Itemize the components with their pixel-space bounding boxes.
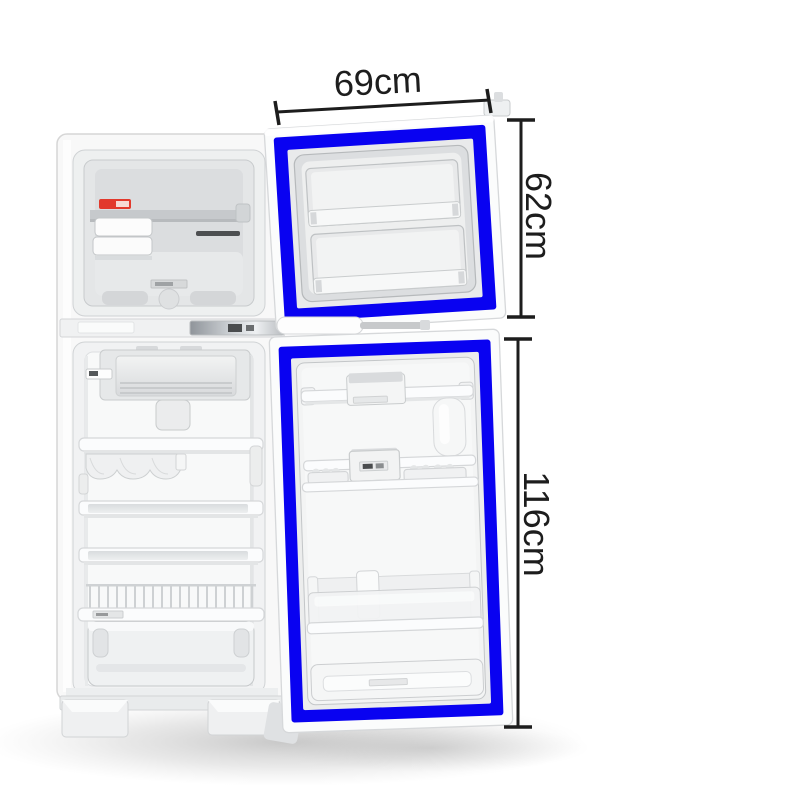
fridge-door-height-label: 116cm <box>516 471 557 576</box>
freezer-door-upper-bin <box>306 159 461 226</box>
fridge-door <box>269 329 513 733</box>
freezer-slot <box>196 231 240 236</box>
back-panel-recess <box>156 400 190 430</box>
left-foot <box>62 700 128 737</box>
door-bottom-tray <box>311 659 484 701</box>
crisper-drawer <box>88 622 254 686</box>
refrigerator-cabinet <box>57 134 284 737</box>
shelf-1 <box>79 438 263 454</box>
cabinet-edge-highlight <box>63 140 71 692</box>
ice-trays <box>93 218 152 260</box>
turbo-freeze-label <box>99 199 131 209</box>
shelf-3 <box>79 548 263 565</box>
freezer-door <box>264 115 506 332</box>
cabinet-bottom-edge <box>66 688 278 696</box>
door-width-label: 69cm <box>333 59 423 105</box>
product-measurement-diagram: 69cm 62cm 116cm <box>0 0 800 800</box>
cooling-unit <box>100 346 250 400</box>
freezer-door-lower-bin <box>311 225 467 294</box>
refrigerator-illustration: 69cm 62cm 116cm <box>0 0 800 800</box>
fresh-food-compartment <box>66 342 278 696</box>
dimension-fridge-door-height: 116cm <box>504 339 557 727</box>
left-rail-bump <box>79 474 88 494</box>
dimension-door-width: 69cm <box>275 59 491 125</box>
door-bottle-holder <box>432 397 466 456</box>
freezer-compartment <box>73 150 265 316</box>
freezer-door-height-label: 62cm <box>518 172 559 260</box>
shelf-2 <box>79 501 263 518</box>
dimension-freezer-door-height: 62cm <box>507 120 559 317</box>
control-panel-strip <box>60 319 284 337</box>
wine-rack <box>86 454 186 479</box>
thermostat-clip <box>86 369 112 379</box>
right-rail-bump <box>250 446 262 486</box>
